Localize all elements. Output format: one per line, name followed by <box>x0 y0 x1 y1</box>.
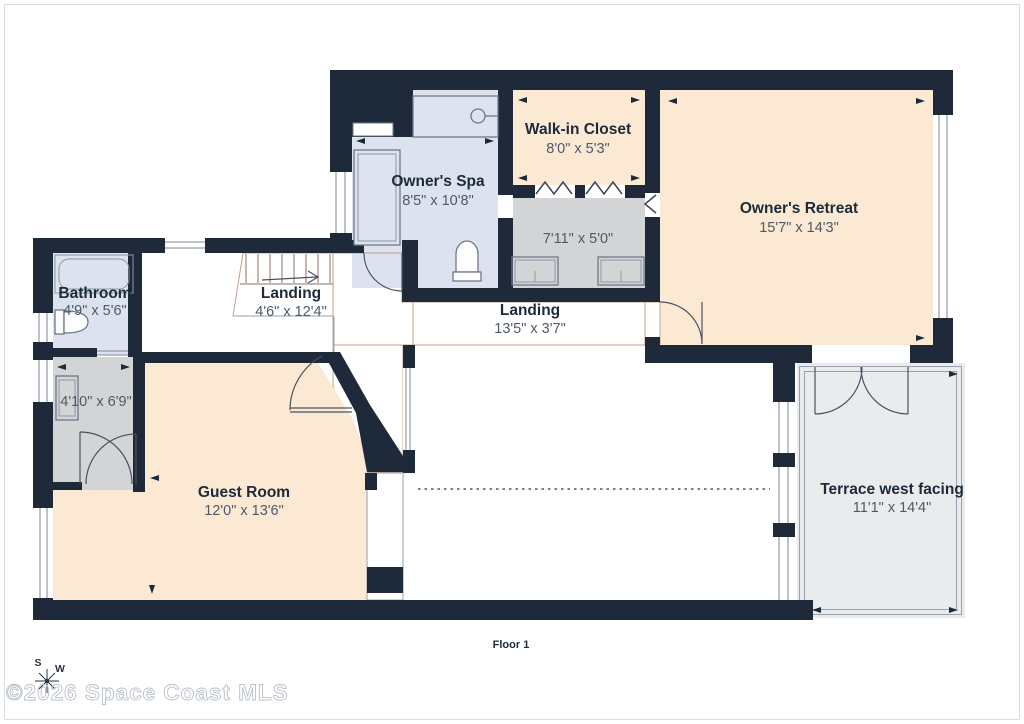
terrace-dims: 11'1" x 14'4" <box>853 500 931 516</box>
owners-spa-dims: 8'5" x 10'8" <box>402 193 473 209</box>
utility-room-floor <box>53 357 133 490</box>
owners-spa-label: Owner's Spa <box>391 173 485 190</box>
landing-stair-dims: 4'6" x 12'4" <box>255 304 326 320</box>
spa-toilet-tank <box>453 272 481 281</box>
floor-caption: Floor 1 <box>493 639 530 651</box>
watermark: ©2026 Space Coast MLS <box>6 680 289 705</box>
stairwell-edge <box>233 316 334 352</box>
walk-in-closet-dims: 8'0" x 5'3" <box>546 141 609 157</box>
closet-opening-icon <box>645 195 656 213</box>
utility-room-dims: 4'10" x 6'9" <box>60 394 131 410</box>
compass-south-label: S <box>34 657 41 669</box>
stair-treads <box>240 254 333 284</box>
owners-retreat-label: Owner's Retreat <box>740 200 858 217</box>
spa-toilet-bowl <box>456 241 478 272</box>
walk-in-closet-label: Walk-in Closet <box>525 121 631 138</box>
shower-enclosure <box>354 150 400 245</box>
landing-strip-dims: 13'5" x 3'7" <box>494 321 565 337</box>
guest-room-label: Guest Room <box>198 484 290 501</box>
landing-strip-label: Landing <box>500 302 560 319</box>
wardrobe-closet-dims: 7'11" x 5'0" <box>543 231 613 247</box>
bathroom-label: Bathroom <box>58 285 131 302</box>
floor-plan-svg: Owner's Spa 8'5" x 10'8" Walk-in Closet … <box>0 0 1024 724</box>
owners-retreat-floor <box>660 90 933 345</box>
guest-room-dims: 12'0" x 13'6" <box>204 503 284 519</box>
terrace-label: Terrace west facing <box>820 481 964 498</box>
landing-stair-label: Landing <box>261 285 321 302</box>
owners-retreat-dims: 15'7" x 14'3" <box>759 220 839 236</box>
bathroom-dims: 4'9" x 5'6" <box>63 303 126 319</box>
floor-plan-page: Owner's Spa 8'5" x 10'8" Walk-in Closet … <box>0 0 1024 724</box>
compass-west-label: W <box>55 663 65 675</box>
staircase <box>240 254 333 284</box>
wall-niche <box>353 123 393 136</box>
